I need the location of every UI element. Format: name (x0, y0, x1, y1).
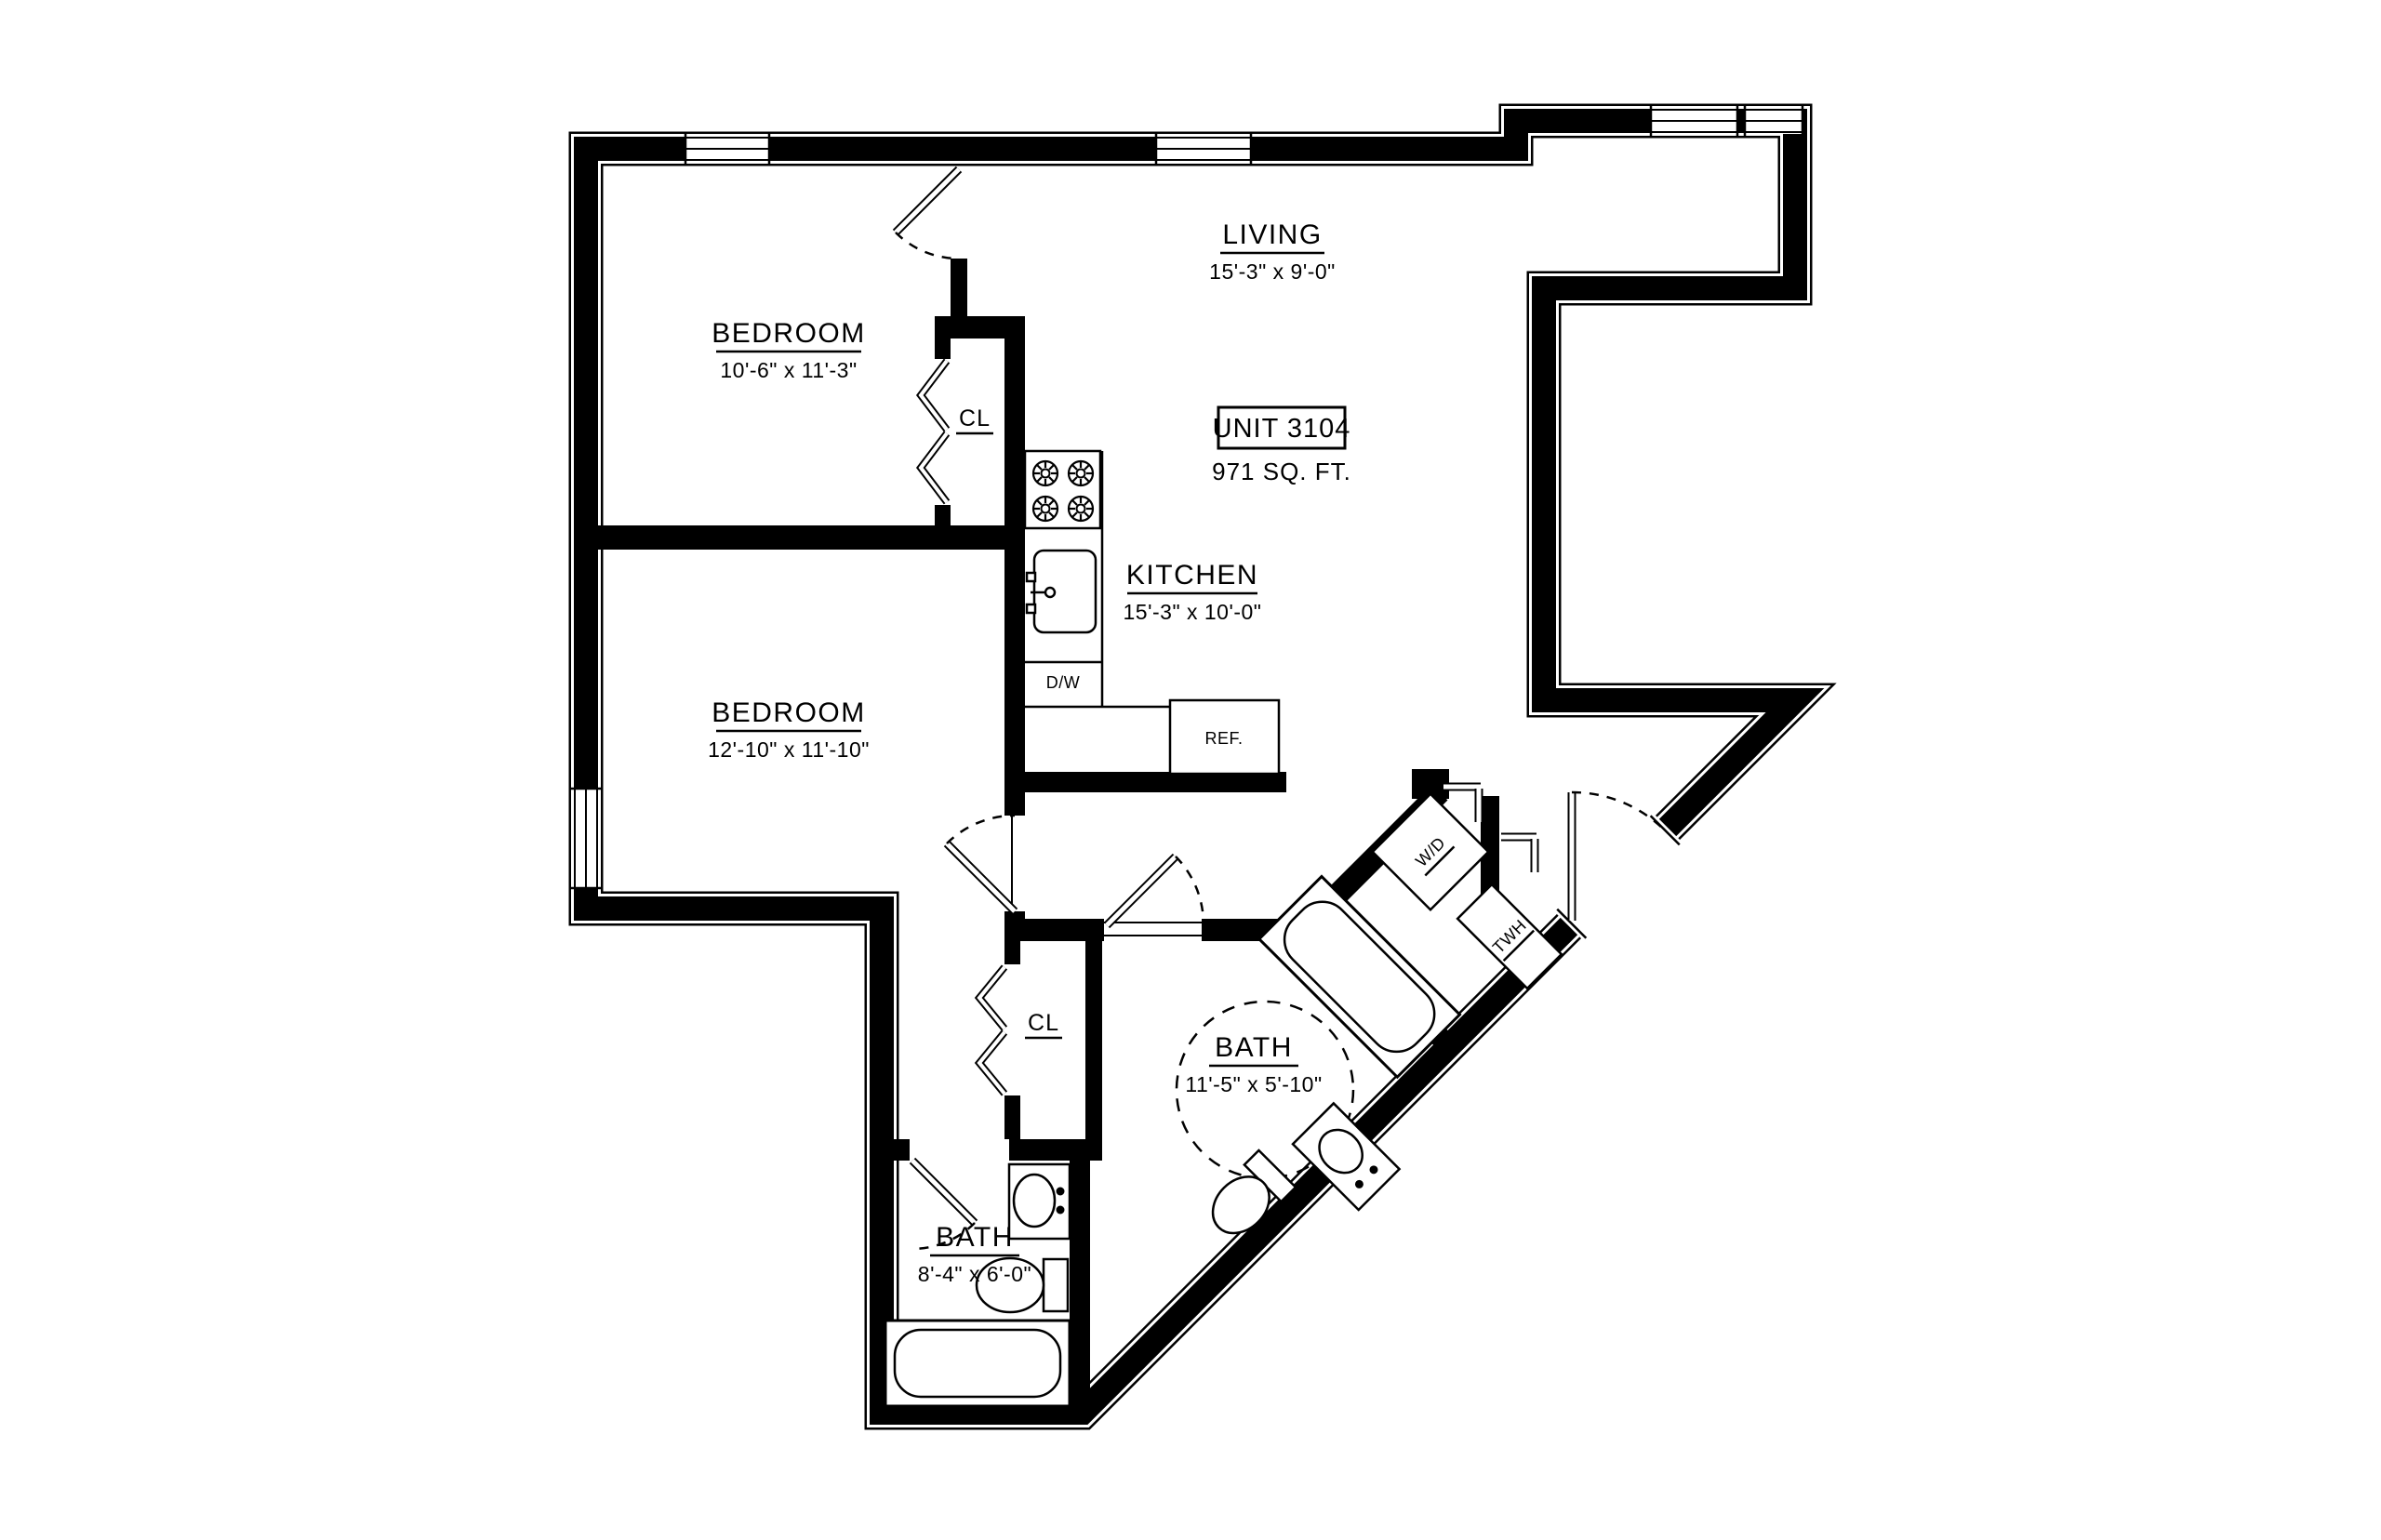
stove (1025, 451, 1100, 528)
bath1-name: BATH (1215, 1032, 1293, 1063)
window-bedroom2 (571, 789, 601, 888)
bath2-tub (885, 1321, 1070, 1406)
bath2-name: BATH (936, 1222, 1014, 1253)
window-living-right-1 (1651, 106, 1737, 136)
window-living-right-2 (1745, 106, 1802, 136)
refrigerator-label: REF. (1204, 729, 1243, 748)
dishwasher-label: D/W (1046, 673, 1081, 692)
window-bedroom1 (685, 134, 769, 164)
window-living (1156, 134, 1251, 164)
closet2-label: CL (1025, 1010, 1062, 1038)
bedroom1-name: BEDROOM (712, 318, 866, 349)
closet2-name: CL (1028, 1010, 1059, 1036)
closet1-label: CL (956, 405, 993, 433)
living-dims: 15'-3" x 9'-0" (1209, 259, 1336, 284)
floor-plan-page: LIVING 15'-3" x 9'-0" UNIT 3104 971 SQ. … (0, 0, 2381, 1540)
bath2-sink (1009, 1164, 1070, 1239)
bath1-dims: 11'-5" x 5'-10" (1185, 1072, 1322, 1096)
bedroom2-dims: 12'-10" x 11'-10" (708, 737, 870, 762)
bedroom2-name: BEDROOM (712, 697, 866, 728)
kitchen-dims: 15'-3" x 10'-0" (1124, 600, 1262, 624)
closet1-name: CL (959, 405, 991, 431)
unit-label: UNIT 3104 (1213, 414, 1351, 444)
living-name: LIVING (1222, 219, 1322, 250)
unit-area: 971 SQ. FT. (1212, 458, 1351, 485)
bath2-dims: 8'-4" x 6'-0" (918, 1262, 1031, 1286)
floor-plan: LIVING 15'-3" x 9'-0" UNIT 3104 971 SQ. … (0, 0, 2381, 1540)
bedroom1-dims: 10'-6" x 11'-3" (720, 358, 857, 382)
kitchen-sink (1027, 551, 1096, 632)
kitchen-name: KITCHEN (1126, 560, 1258, 591)
